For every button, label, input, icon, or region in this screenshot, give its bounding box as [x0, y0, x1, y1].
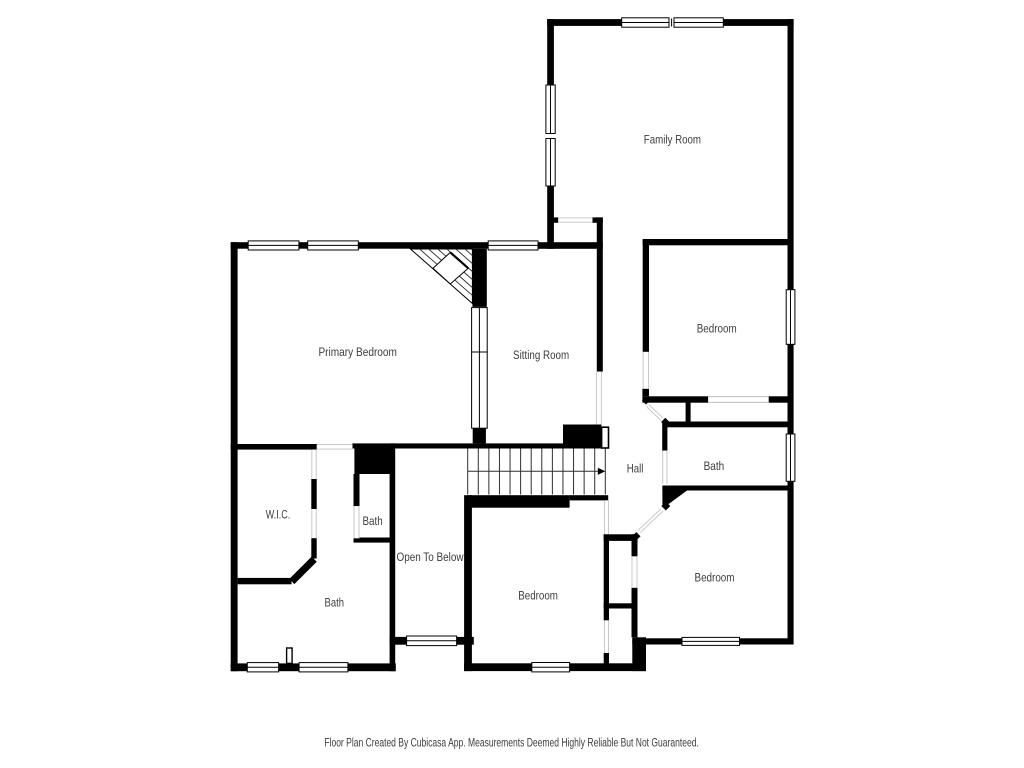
- svg-text:Bath: Bath: [325, 596, 345, 610]
- svg-text:W.I.C.: W.I.C.: [266, 507, 290, 521]
- svg-text:Bedroom: Bedroom: [697, 322, 737, 336]
- svg-text:Primary Bedroom: Primary Bedroom: [318, 345, 397, 359]
- svg-text:Sitting Room: Sitting Room: [513, 348, 569, 362]
- svg-text:Bedroom: Bedroom: [518, 588, 558, 602]
- svg-text:Family Room: Family Room: [644, 133, 701, 147]
- svg-text:Hall: Hall: [627, 462, 644, 476]
- svg-text:Bath: Bath: [363, 514, 383, 528]
- svg-text:Bath: Bath: [704, 459, 725, 473]
- svg-text:Floor Plan Created By Cubicasa: Floor Plan Created By Cubicasa App. Meas…: [324, 736, 699, 750]
- svg-text:Bedroom: Bedroom: [695, 570, 735, 584]
- svg-text:Open To Below: Open To Below: [397, 550, 464, 564]
